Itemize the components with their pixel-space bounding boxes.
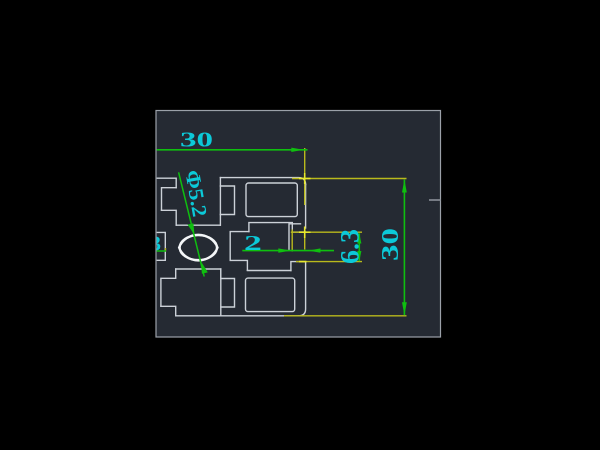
svg-text:6.3: 6.3 (336, 229, 365, 264)
svg-text:30: 30 (378, 228, 404, 261)
svg-text:2: 2 (244, 232, 262, 255)
svg-text:30: 30 (180, 128, 213, 152)
